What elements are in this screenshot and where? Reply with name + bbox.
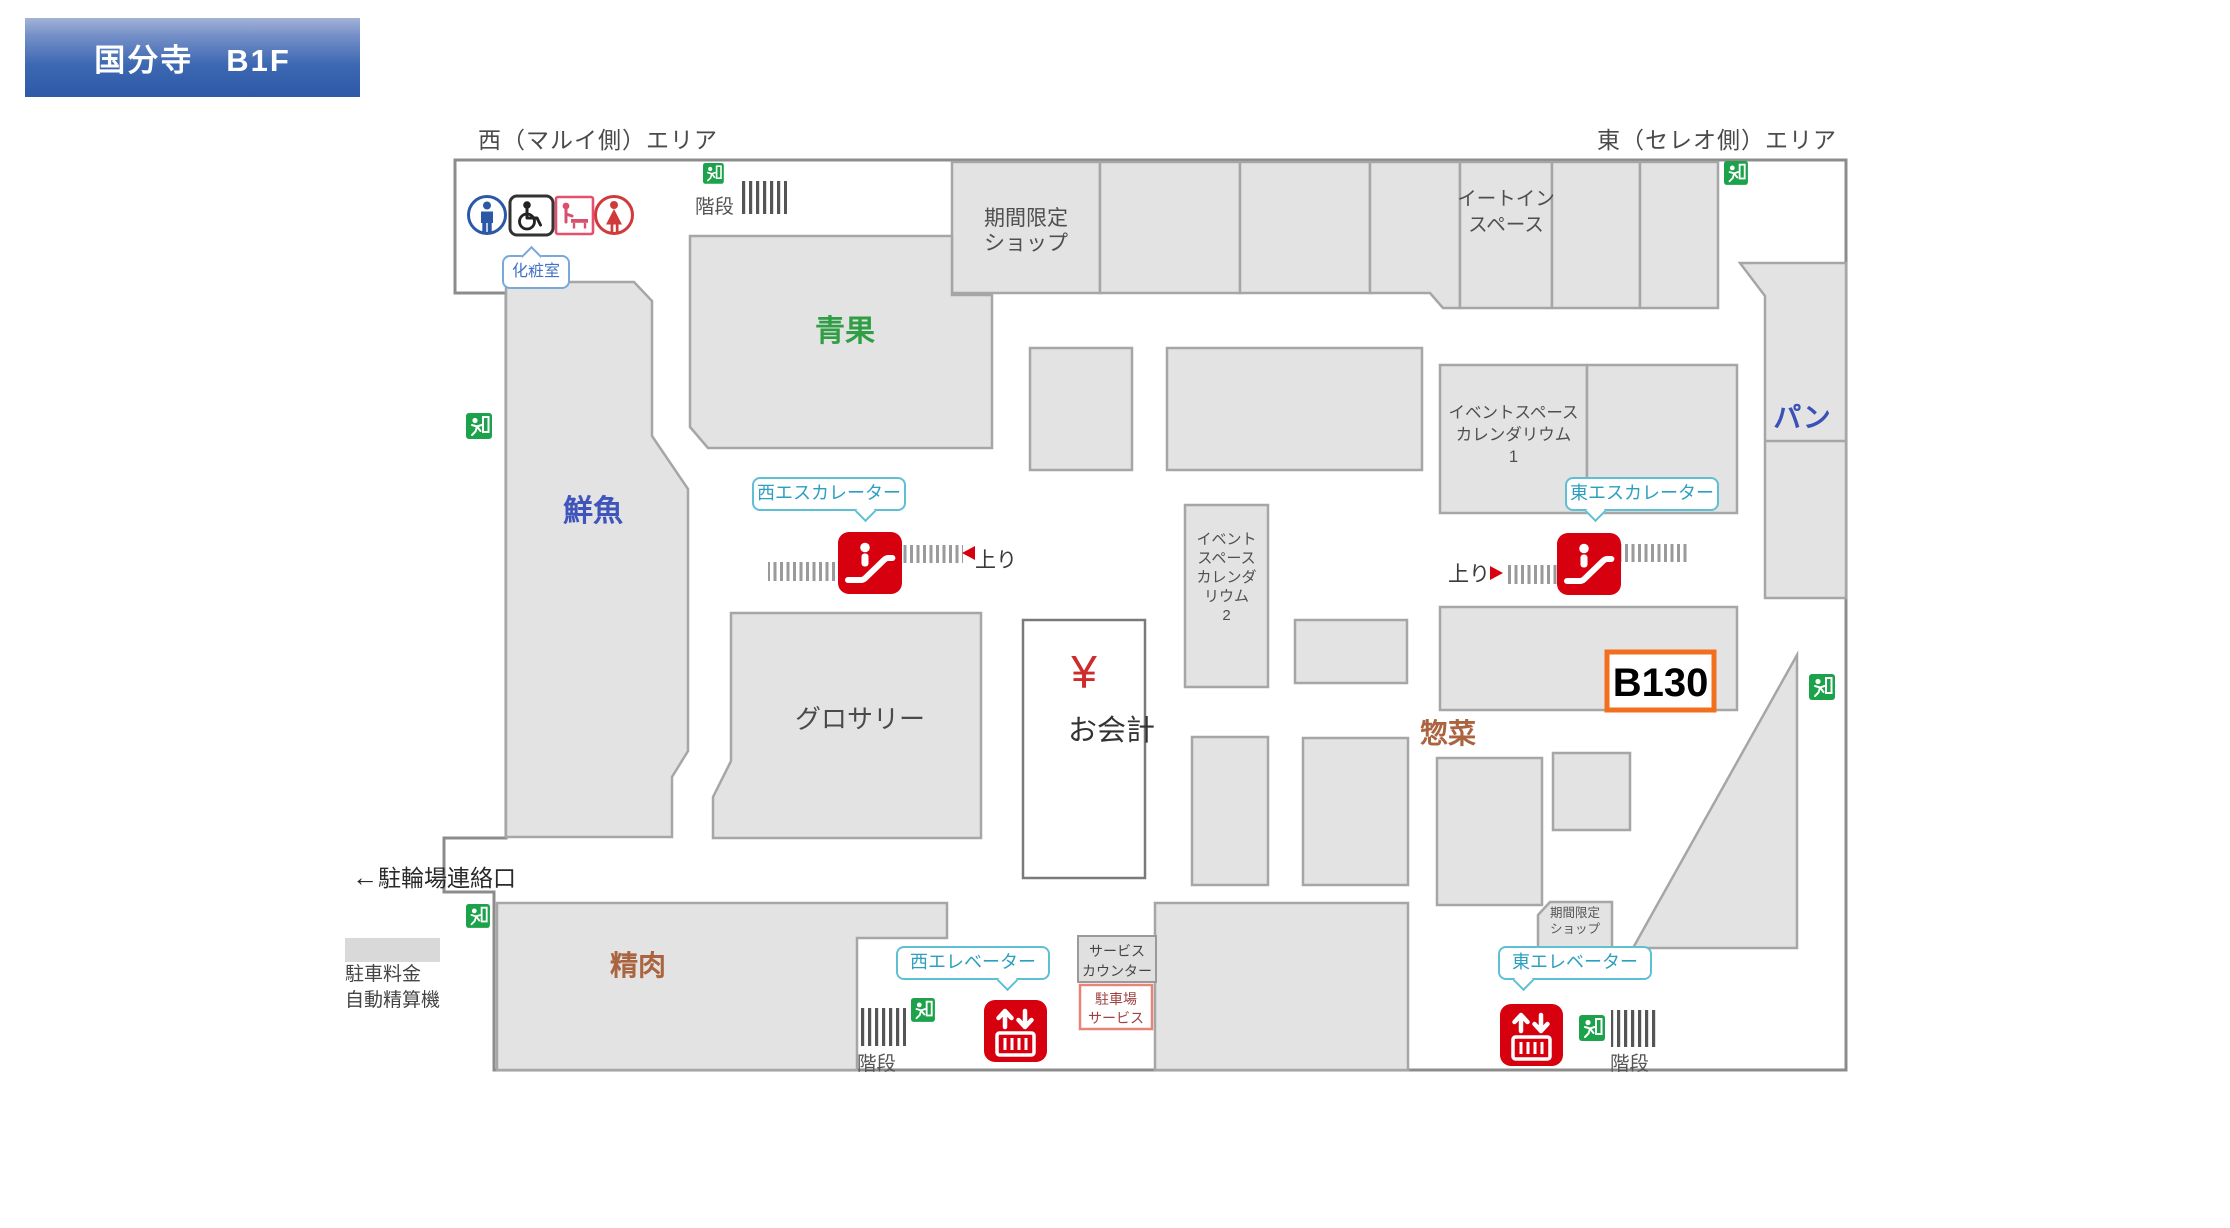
- exit-icon: [1724, 161, 1748, 185]
- escalator-west-lower-hatch: [768, 562, 838, 581]
- stairs-label-top: 階段: [695, 190, 734, 219]
- left-arrow-icon: ←: [352, 862, 378, 892]
- area-label-east: 東（セレオ側）エリア: [1597, 121, 1837, 155]
- stairs-hatch-west: [858, 1008, 906, 1046]
- service-counter-label: サービス カウンター: [1078, 941, 1156, 981]
- grocery-label: グロサリー: [790, 699, 930, 736]
- deli-label: 惣菜: [1420, 712, 1476, 752]
- meat-label: 精肉: [610, 944, 666, 984]
- west-escalator-icon: [838, 532, 902, 594]
- block-service-area: [1155, 903, 1408, 1070]
- limited-shop-small-label: 期間限定 ショップ: [1538, 906, 1612, 937]
- exit-icon: [911, 998, 935, 1022]
- stairs-label-west: 階段: [857, 1047, 896, 1076]
- block-mid: [1192, 737, 1268, 885]
- womens-restroom-icon: [596, 197, 633, 234]
- block-deli-small: [1553, 753, 1630, 830]
- parking-machine-bar: [345, 938, 440, 962]
- up-label-east: 上り: [1448, 558, 1490, 588]
- exit-icon: [1579, 1015, 1605, 1041]
- up-label-west: 上り: [975, 544, 1017, 574]
- checkout-label-wrap: お会計: [1023, 708, 1145, 755]
- restroom-icons: [469, 196, 633, 235]
- parking-service-label: 駐車場 サービス: [1080, 990, 1152, 1028]
- block-top-cell: [1240, 162, 1370, 293]
- escalator-west-upper-hatch: [903, 545, 963, 563]
- bread-label: パン: [1770, 396, 1834, 436]
- exit-icon: [703, 163, 724, 184]
- block-mid: [1030, 348, 1132, 470]
- block-top-cell: [1100, 162, 1240, 293]
- west-escalator-bubble: 西エスカレーター: [752, 477, 906, 511]
- checkout-label: お会計: [1068, 708, 1100, 755]
- block-mid: [1303, 738, 1408, 885]
- east-escalator-icon: [1557, 533, 1621, 595]
- escalator-east-upper-hatch: [1621, 544, 1687, 562]
- block-mid: [1167, 348, 1422, 470]
- exit-icon: [466, 413, 492, 439]
- parking-fee-machine-label: 駐車料金 自動精算機: [345, 962, 440, 1014]
- floor-map-page: 国分寺 B1F: [0, 0, 2230, 1228]
- east-escalator-bubble: 東エスカレーター: [1565, 477, 1719, 511]
- event-space-2-label: イベント スペース カレンダ リウム 2: [1185, 530, 1268, 625]
- block-deli: [1437, 758, 1542, 905]
- wheelchair-icon: [510, 196, 553, 235]
- limited-shop-label: 期間限定 ショップ: [952, 206, 1100, 256]
- bicycle-exit-label: 駐輪場連絡口: [378, 865, 516, 891]
- stairs-label-east: 階段: [1610, 1047, 1649, 1076]
- west-elevator-icon: [984, 1000, 1047, 1062]
- block-top-cell: [1640, 162, 1718, 308]
- block-mid: [1295, 620, 1407, 683]
- checkout-yen: ¥: [1023, 645, 1145, 699]
- stairs-hatch-east: [1611, 1010, 1657, 1047]
- eat-in-label: イートイン スペース: [1416, 186, 1596, 238]
- stairs-hatch-top: [741, 181, 787, 214]
- fresh-fish-label: 鮮魚: [533, 486, 653, 530]
- produce-label: 青果: [785, 306, 905, 350]
- baby-room-icon: [556, 197, 593, 234]
- exit-icon: [1809, 674, 1835, 700]
- mens-restroom-icon: [469, 197, 506, 234]
- bicycle-exit-label-wrap: ←駐輪場連絡口: [352, 859, 516, 893]
- b130-badge-label: B130: [1607, 661, 1714, 706]
- east-elevator-icon: [1500, 1004, 1563, 1066]
- area-label-west: 西（マルイ側）エリア: [478, 121, 718, 155]
- exit-icon: [466, 904, 490, 928]
- event-space-1-label: イベントスペース カレンダリウム 1: [1440, 402, 1587, 468]
- floor-map-canvas: [0, 0, 2230, 1228]
- west-elevator-bubble: 西エレベーター: [896, 946, 1050, 980]
- escalator-east-lower-hatch: [1505, 565, 1557, 584]
